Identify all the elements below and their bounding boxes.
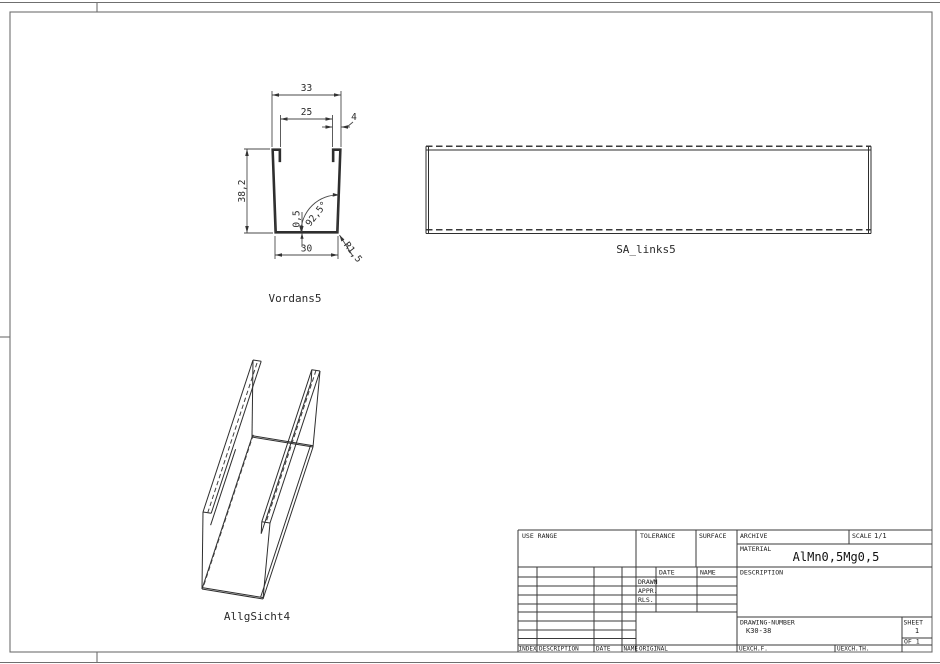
title-tolerance: TOLERANCE <box>640 532 675 540</box>
dim-opening-width: 25 <box>301 107 312 118</box>
drawing-sheet: 33 25 4 38,2 30 0,5 92,5° <box>0 0 940 664</box>
title-row-date: DATE <box>596 646 611 653</box>
title-name-col: NAME <box>700 569 716 577</box>
title-surface: SURFACE <box>699 532 726 540</box>
title-uexch-th: UEXCH.TH. <box>837 646 870 653</box>
dim-height: 38,2 <box>237 180 248 203</box>
title-rls: RLS. <box>638 596 654 604</box>
title-date-col: DATE <box>659 569 675 577</box>
title-sheet-label: SHEET <box>904 619 924 627</box>
title-uexch-f: UEXCH.F. <box>739 646 768 653</box>
dim-top-width: 33 <box>301 83 312 94</box>
title-material-value: AlMn0,5Mg0,5 <box>793 550 880 564</box>
title-use-range: USE RANGE <box>522 532 557 540</box>
front-view-dimensions: 33 25 4 38,2 30 0,5 92,5° <box>237 83 364 265</box>
view-labels: Vordans5 SA_links5 AllgSicht4 <box>224 243 676 623</box>
iso-view <box>202 360 320 599</box>
title-archive: ARCHIVE <box>740 532 767 540</box>
title-drawing-number-value: K30-38 <box>746 627 771 635</box>
dim-bottom-width: 30 <box>301 244 313 255</box>
title-sheet-value: 1 <box>915 627 919 635</box>
side-view <box>426 146 871 233</box>
title-scale-label: SCALE <box>852 532 872 540</box>
title-description: DESCRIPTION <box>740 569 783 577</box>
dim-flange-width: 4 <box>351 112 357 123</box>
dim-corner-radius: R1,5 <box>341 240 364 265</box>
title-of-value: OF 1 <box>904 638 920 646</box>
title-drawn: DRAWN <box>638 578 658 586</box>
title-index: INDEX <box>519 646 537 653</box>
title-row-description: DESCRIPTION <box>539 646 579 653</box>
view-label-front: Vordans5 <box>269 292 322 305</box>
title-material-label: MATERIAL <box>740 545 771 553</box>
dim-wall-angle: 92,5° <box>304 200 330 229</box>
title-drawing-number-label: DRAWING-NUMBER <box>740 619 795 627</box>
title-appr: APPR. <box>638 587 658 595</box>
view-label-side: SA_links5 <box>616 243 676 256</box>
title-original: ORIGINAL <box>639 646 668 653</box>
title-block: USE RANGE TOLERANCE SURFACE ARCHIVE SCAL… <box>518 530 932 653</box>
view-label-iso: AllgSicht4 <box>224 610 291 623</box>
title-scale-value: 1/1 <box>874 532 887 540</box>
dim-thickness: 0,5 <box>292 210 303 227</box>
title-row-name: NAME <box>624 646 639 653</box>
